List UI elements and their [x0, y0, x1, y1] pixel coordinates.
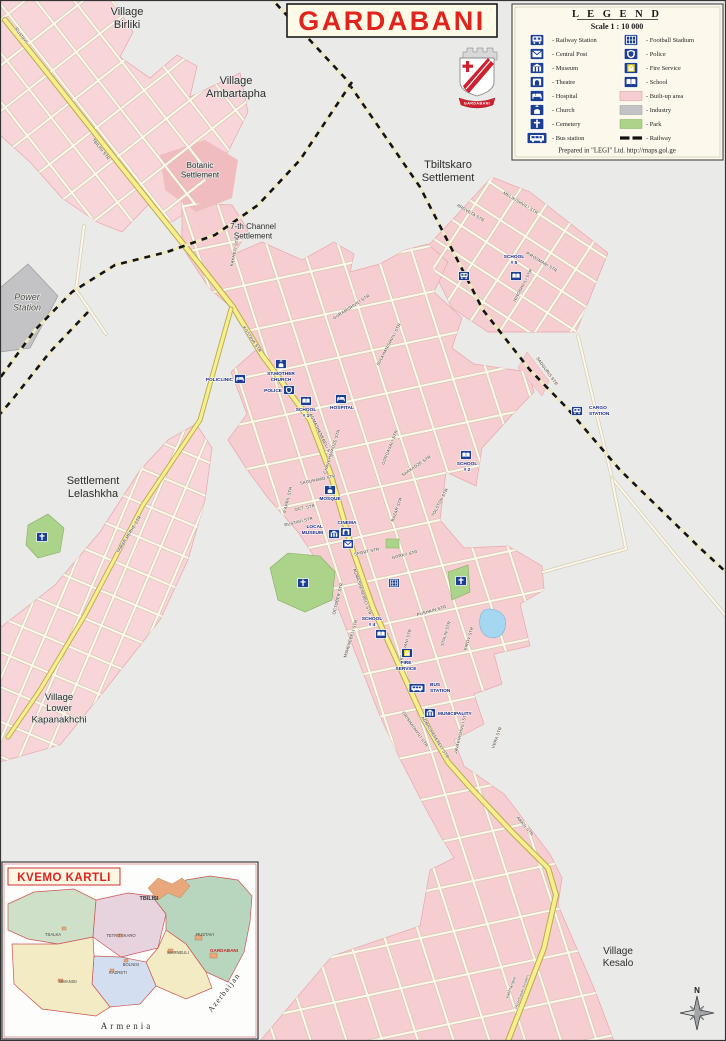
place-label: Botanic [187, 161, 214, 170]
poi-label: MUNICIPALITY [438, 711, 473, 717]
legend-item-label: - Fire Service [646, 65, 681, 72]
church-icon [325, 486, 336, 495]
inset-map-kvemo-kartli: KVEMO KARTLI TBILISITSALKATETRITSKARORUS… [2, 862, 258, 1039]
legend-title: L E G E N D [572, 9, 662, 20]
inset-label: TBILISI [140, 896, 159, 902]
poi-label: POLICLINIC [206, 377, 234, 383]
legend-item-label: - Church [552, 107, 575, 114]
railway-station-icon [572, 407, 583, 416]
place-label: Tbiltskaro [424, 159, 472, 171]
church-icon [276, 360, 287, 369]
legend-item-label: - Central Post [552, 51, 587, 58]
fire-service-icon [624, 62, 638, 73]
legend-item-label: - School [646, 79, 668, 86]
legend-item-label: - Built-up area [646, 93, 683, 100]
place-label: Station [13, 303, 41, 313]
inset-label: RUSTAVI [196, 932, 214, 937]
inset-title: KVEMO KARTLI [17, 872, 111, 884]
fire-service-icon [402, 649, 413, 658]
poi-label: # 4 [369, 622, 376, 628]
legend-item-label: - Theatre [552, 79, 575, 86]
inset-label: KAZRETI [109, 970, 127, 975]
cemetery-icon [530, 118, 544, 129]
legend-credit: Prepared in "LEGI" Ltd. http://maps.gol.… [558, 148, 676, 155]
school-icon [301, 397, 312, 406]
cemetery-icon [298, 579, 309, 588]
poi-label: CHURCH [271, 377, 292, 383]
poi-label: CARGO [589, 405, 607, 411]
legend-item-label: - Hospital [552, 93, 578, 100]
legend-item-label: - Museum [552, 65, 578, 72]
poi-label: POLICE [264, 388, 283, 394]
poi-label: STATION [589, 411, 610, 417]
legend-item-label: - Football Stadium [646, 37, 694, 44]
poi-label: FIRE [401, 660, 413, 666]
poi-label: # 2 [464, 467, 471, 473]
place-label: Settlement [234, 231, 273, 240]
stadium-icon [389, 579, 400, 588]
cemetery-icon [37, 533, 48, 542]
poi-label: MOSQUE [319, 496, 341, 502]
school-icon [624, 76, 638, 87]
museum-icon [530, 62, 544, 73]
place-label: Lower [46, 703, 72, 714]
bus-station-icon [409, 684, 425, 693]
poi-label: MUSEUM [302, 530, 323, 536]
inset-label: TSALKA [45, 932, 61, 937]
inset-label: GARDABANI [210, 948, 238, 953]
hospital-icon [530, 90, 544, 101]
central-post-icon [343, 540, 354, 549]
place-label: Village [220, 75, 253, 87]
cemetery-icon [456, 577, 467, 586]
legend-item-label: - Railway Station [552, 37, 598, 44]
legend-item-label: - Park [646, 121, 662, 128]
museum-icon [329, 530, 340, 539]
inset-label: DMANISI [59, 979, 76, 984]
poi-label: ST.MOTHER [267, 371, 295, 377]
poi-label: # 1 [303, 413, 310, 419]
railway-station-icon [530, 34, 544, 45]
legend-item-label: - Industry [646, 107, 672, 114]
museum-icon [425, 709, 436, 718]
poi-label: SERVICE [396, 666, 418, 672]
inset-label: Armenia [101, 1021, 154, 1031]
map-page: RustaviTBILISI STRKAKHETI STRKOSTAVA STR… [0, 0, 726, 1041]
legend-item-label: - Cemetery [552, 121, 581, 128]
poi-label: SCHOOL [296, 407, 317, 413]
lake [480, 609, 506, 638]
place-label: Settlement [422, 172, 475, 184]
place-label: Village [603, 946, 633, 957]
poi-label: SCHOOL [362, 616, 383, 622]
legend-item-label: - Railway [646, 135, 672, 142]
poi-label: HOSPITAL [330, 405, 354, 411]
legend-item-label: - Bus station [552, 135, 585, 142]
hospital-icon [235, 375, 246, 384]
place-label: Birliki [114, 19, 140, 31]
theatre-icon [341, 528, 352, 537]
place-label: Village [45, 692, 73, 703]
school-icon [376, 630, 387, 639]
church-icon [530, 104, 544, 115]
place-label: Kapanakhchi [32, 714, 87, 725]
place-label: Settlement [181, 170, 220, 179]
police-icon [624, 48, 638, 59]
place-label: Ambartapha [206, 88, 267, 100]
school-icon [511, 272, 522, 281]
poi-label: # 5 [511, 260, 518, 266]
place-label: 7-th Channel [230, 222, 276, 231]
central-post-icon [530, 48, 544, 59]
crest-name: GARDABANI [464, 101, 490, 105]
place-label: Settlement [67, 475, 120, 487]
page-title: GARDABANI [298, 6, 486, 36]
theatre-icon [530, 76, 544, 87]
place-label: Kesalo [603, 958, 634, 969]
inset-label: MARNEULI [167, 950, 189, 955]
title-banner: GARDABANI [287, 4, 497, 37]
inset-label: TETRITSKARO [106, 933, 136, 938]
place-label: Lelashkha [68, 488, 119, 500]
railway-station-icon [459, 272, 470, 281]
legend: L E G E N D Scale 1 : 10 000 - Railway S… [512, 4, 723, 160]
legend-scale: Scale 1 : 10 000 [591, 22, 643, 31]
poi-label: STATION [430, 688, 451, 694]
poi-label: LOCAL [306, 524, 323, 530]
stadium-icon [624, 34, 638, 45]
compass-north-label: N [694, 986, 700, 995]
legend-item-label: - Police [646, 51, 666, 58]
place-label: Village [111, 6, 144, 18]
bus-station-icon [527, 132, 547, 143]
gardabani-map: RustaviTBILISI STRKAKHETI STRKOSTAVA STR… [0, 0, 726, 1041]
poi-label: SCHOOL [457, 461, 478, 467]
police-icon [284, 386, 295, 395]
poi-label: BUS [430, 682, 441, 688]
place-label: Power [14, 292, 41, 302]
inset-label: BOLNISI [123, 962, 140, 967]
school-icon [461, 451, 472, 460]
poi-label: CINEMA [338, 520, 357, 526]
poi-label: SCHOOL [504, 254, 525, 260]
hospital-icon [336, 395, 347, 404]
